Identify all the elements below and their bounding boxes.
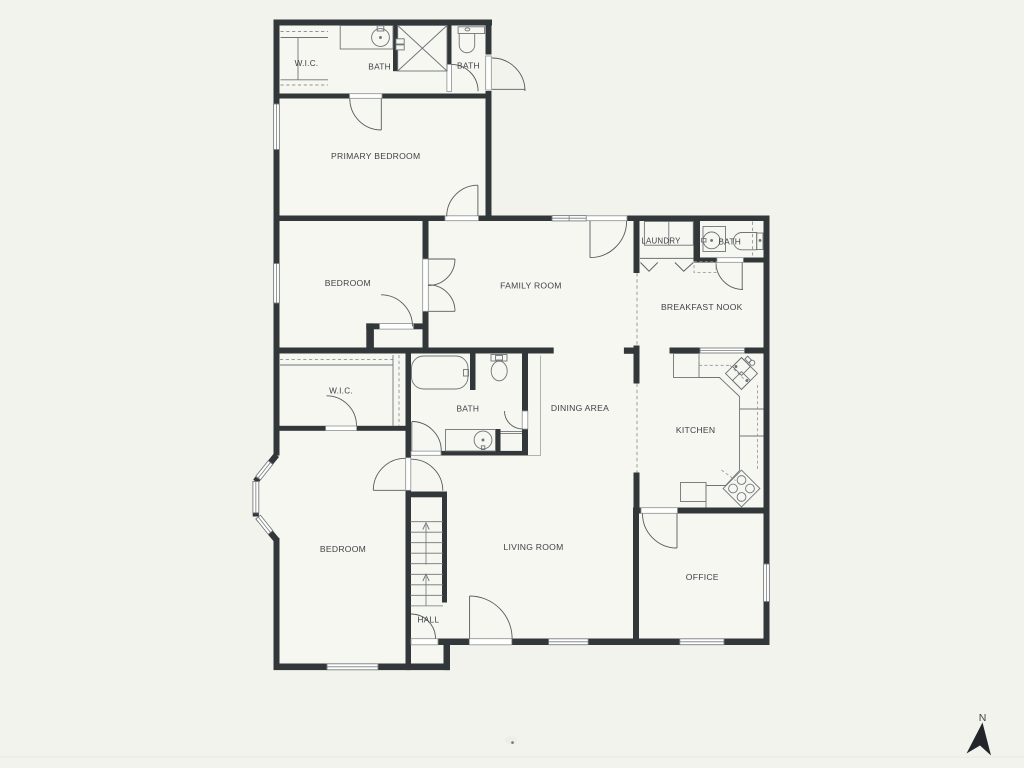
- svg-text:N: N: [979, 712, 987, 724]
- svg-text:OFFICE: OFFICE: [686, 572, 719, 582]
- svg-text:LAUNDRY: LAUNDRY: [641, 237, 681, 246]
- svg-text:W.I.C.: W.I.C.: [295, 59, 319, 68]
- svg-text:BREAKFAST NOOK: BREAKFAST NOOK: [661, 302, 743, 312]
- svg-text:FAMILY ROOM: FAMILY ROOM: [500, 281, 562, 291]
- svg-text:BATH: BATH: [456, 404, 479, 414]
- svg-text:BATH: BATH: [718, 237, 741, 247]
- svg-text:LIVING ROOM: LIVING ROOM: [503, 542, 563, 552]
- svg-text:BATH: BATH: [457, 61, 480, 71]
- svg-text:BATH: BATH: [368, 61, 391, 71]
- svg-text:PRIMARY BEDROOM: PRIMARY BEDROOM: [331, 151, 420, 161]
- svg-text:HALL: HALL: [417, 614, 439, 624]
- svg-text:W.I.C.: W.I.C.: [329, 386, 353, 395]
- svg-text:BEDROOM: BEDROOM: [325, 278, 371, 288]
- svg-text:KITCHEN: KITCHEN: [676, 425, 715, 435]
- svg-text:DINING AREA: DINING AREA: [551, 403, 609, 413]
- svg-text:BEDROOM: BEDROOM: [320, 544, 366, 554]
